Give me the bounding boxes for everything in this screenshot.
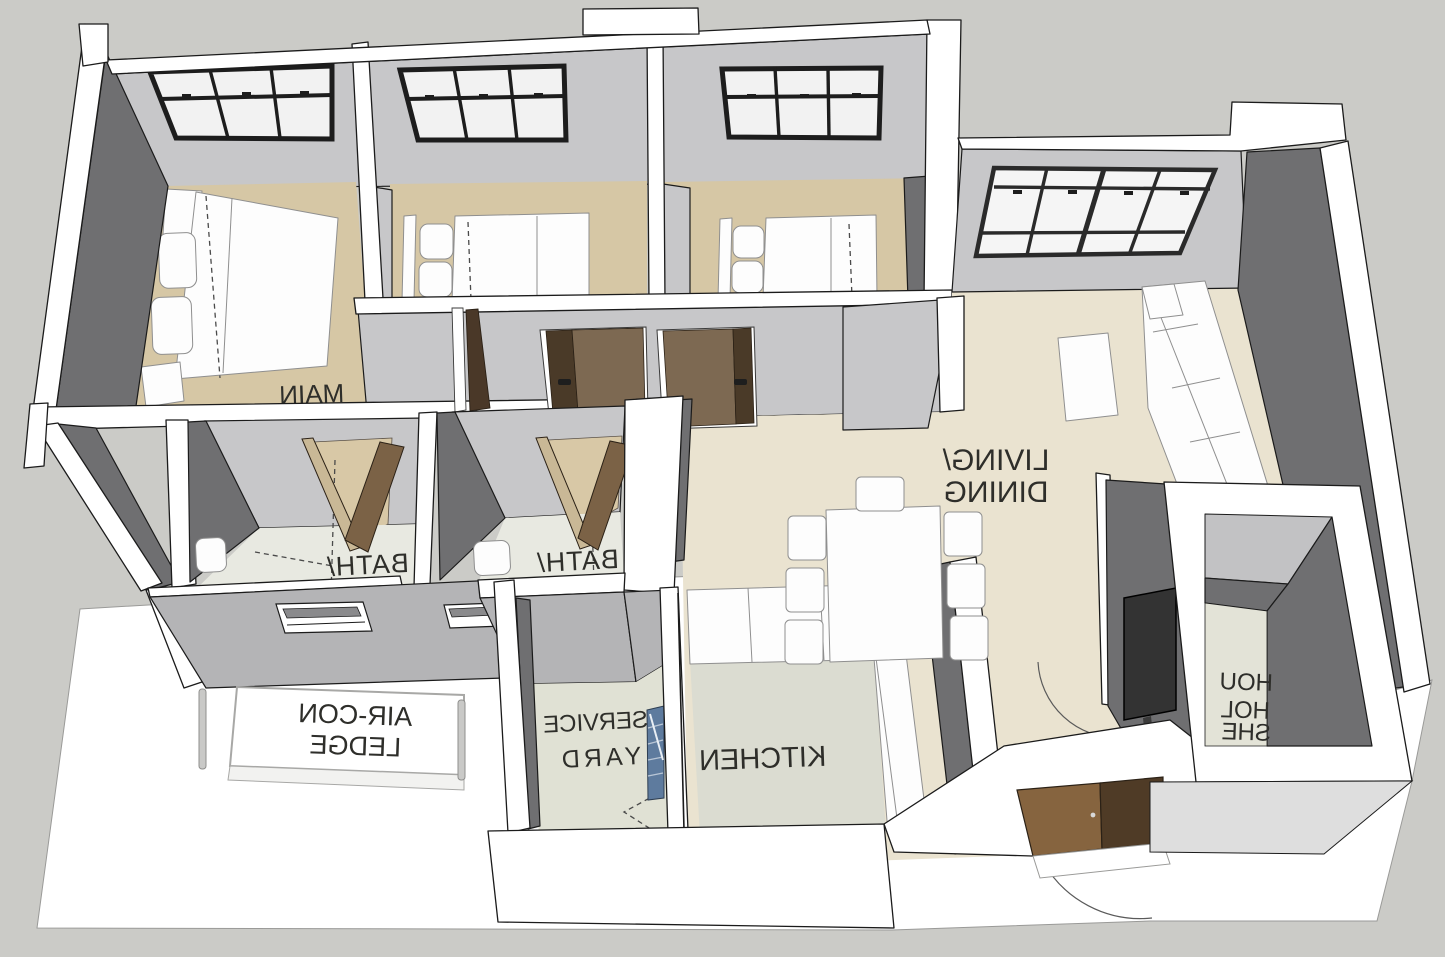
svg-text:AIR-CON: AIR-CON (298, 698, 413, 732)
svg-text:YARD: YARD (557, 742, 642, 774)
svg-text:LEDGE: LEDGE (309, 729, 402, 762)
svg-text:DINING: DINING (944, 476, 1049, 509)
svg-text:SHE: SHE (1221, 718, 1271, 747)
svg-text:LIVING/: LIVING/ (942, 444, 1049, 477)
svg-text:HOU: HOU (1219, 668, 1273, 697)
svg-text:BATH/: BATH/ (536, 544, 620, 578)
svg-text:KITCHEN: KITCHEN (699, 741, 827, 777)
svg-text:SERVICE: SERVICE (543, 706, 649, 738)
